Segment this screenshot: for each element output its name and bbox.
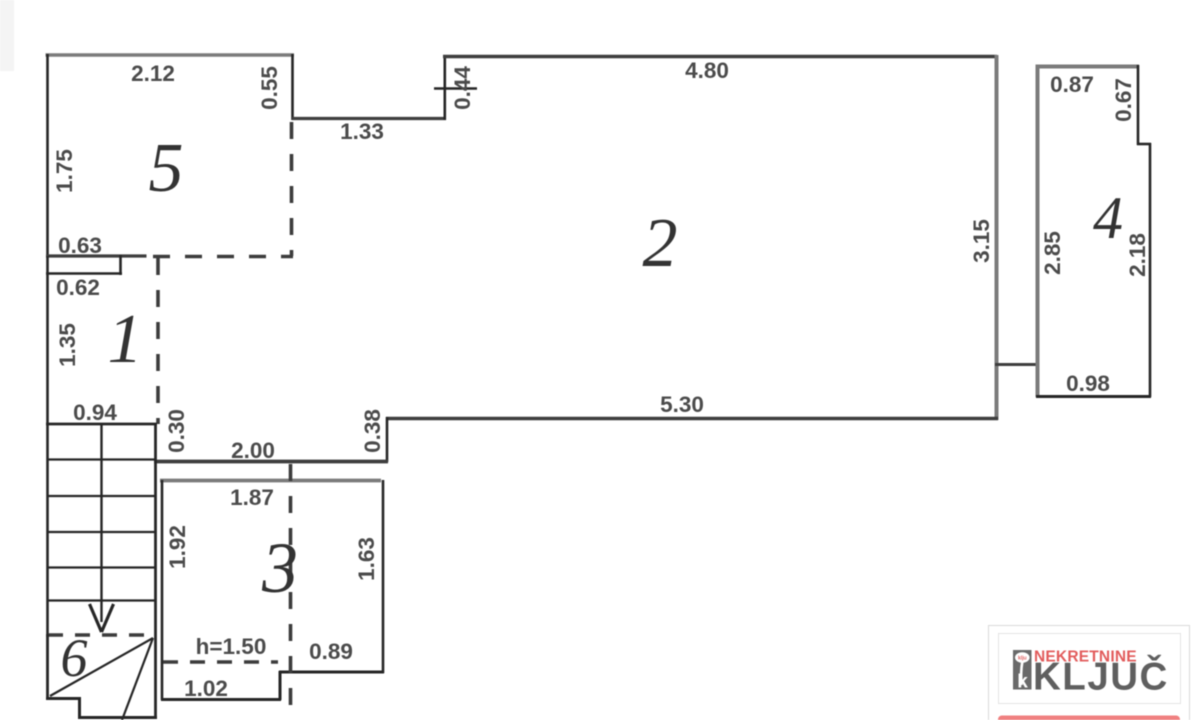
svg-text:KLJUČ: KLJUČ (1033, 654, 1169, 699)
svg-text:1.33: 1.33 (340, 119, 384, 144)
svg-text:0.67: 0.67 (1111, 78, 1136, 122)
svg-text:3: 3 (261, 528, 298, 608)
svg-text:1: 1 (108, 301, 143, 378)
svg-text:2.85: 2.85 (1040, 231, 1065, 275)
svg-text:1.87: 1.87 (230, 485, 274, 510)
svg-text:5: 5 (149, 130, 184, 207)
svg-text:0.94: 0.94 (73, 400, 117, 425)
svg-text:1.35: 1.35 (55, 323, 80, 367)
svg-text:4.80: 4.80 (685, 58, 729, 83)
svg-text:k: k (1017, 672, 1028, 693)
svg-text:0.63: 0.63 (58, 233, 102, 258)
svg-text:2.18: 2.18 (1125, 233, 1150, 277)
svg-text:0.89: 0.89 (309, 639, 353, 664)
svg-text:0.38: 0.38 (360, 409, 385, 453)
svg-text:2.12: 2.12 (131, 61, 175, 86)
svg-text:0.62: 0.62 (56, 275, 100, 300)
svg-text:4: 4 (1093, 185, 1123, 251)
svg-text:1.75: 1.75 (52, 149, 77, 193)
svg-text:1.92: 1.92 (165, 525, 190, 569)
svg-text:h=1.50: h=1.50 (196, 634, 267, 659)
svg-text:klju: klju (1018, 656, 1027, 662)
svg-text:0.44: 0.44 (450, 66, 475, 110)
svg-text:1.63: 1.63 (354, 537, 379, 581)
svg-text:5.30: 5.30 (660, 392, 704, 417)
svg-text:0.55: 0.55 (257, 66, 282, 110)
svg-text:3.15: 3.15 (969, 219, 994, 263)
svg-text:2.00: 2.00 (231, 438, 275, 463)
svg-text:0.87: 0.87 (1050, 72, 1094, 97)
svg-text:1.02: 1.02 (184, 676, 228, 701)
svg-text:6: 6 (61, 628, 88, 688)
svg-text:2: 2 (643, 205, 678, 282)
svg-text:0.30: 0.30 (164, 409, 189, 453)
svg-text:0.98: 0.98 (1066, 371, 1110, 396)
